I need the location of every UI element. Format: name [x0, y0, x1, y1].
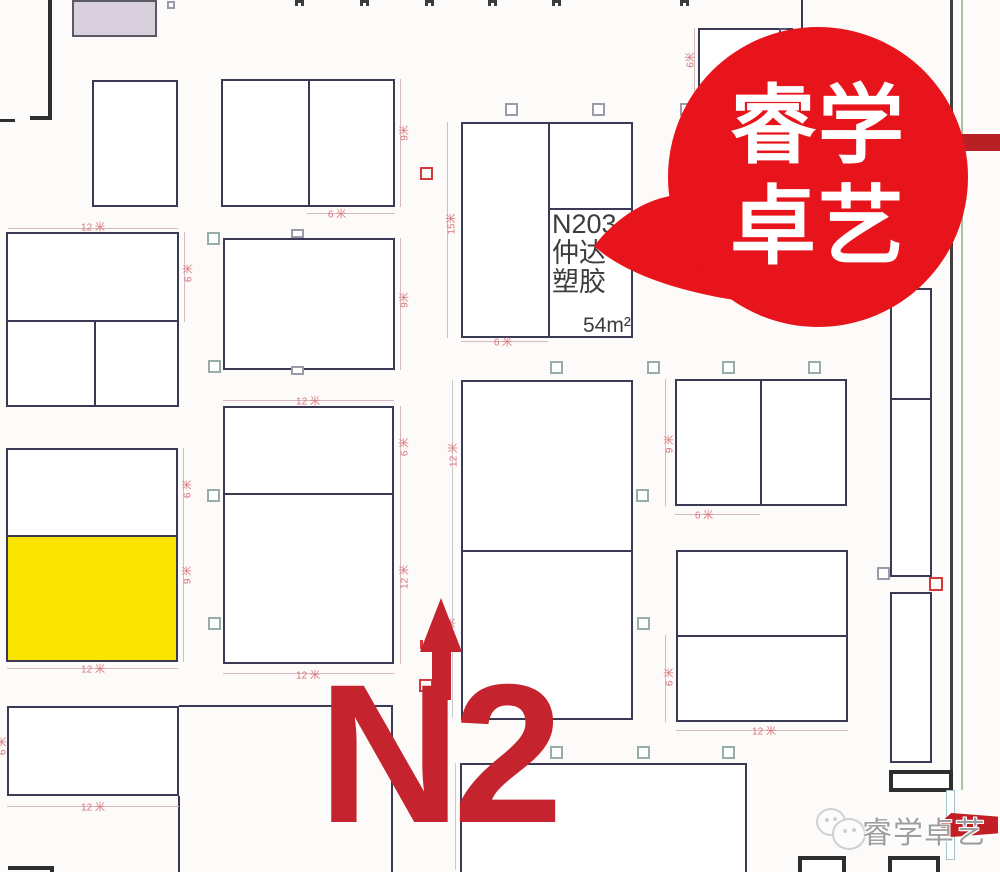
dimension-label: 12 米 [445, 443, 460, 467]
pillar-marker [637, 617, 650, 630]
north-arrow-icon [420, 598, 462, 652]
booth-empty [7, 706, 179, 796]
dimension-label: 12 米 [396, 565, 411, 589]
dimension-label: 6米 [682, 52, 697, 68]
dimension-label: 9 米 [179, 566, 194, 584]
dimension-line [307, 213, 395, 214]
booth-group [223, 406, 394, 664]
pillar-marker [647, 361, 660, 374]
pillar-marker [291, 366, 304, 375]
pillar-marker [877, 567, 890, 580]
pillar-marker [207, 489, 220, 502]
wechat-icon [816, 808, 866, 852]
gray-service-block [72, 0, 157, 37]
dimension-label: 12 米 [752, 723, 776, 738]
dimension-label: 6 米 [494, 334, 512, 349]
pillar-marker [291, 229, 304, 238]
pillar-marker [167, 1, 175, 9]
pillar-marker [722, 361, 735, 374]
dimension-label: 9 米 [661, 435, 676, 453]
wall-structure [888, 856, 940, 872]
dimension-label: 12 米 [81, 799, 105, 814]
dimension-line [400, 79, 401, 207]
ceiling-marker-icon [552, 0, 561, 6]
highlighted-booth [8, 535, 176, 660]
red-marker-square [929, 577, 943, 591]
booth-group [6, 232, 179, 407]
booth-pair [676, 550, 848, 722]
pillar-marker [636, 489, 649, 502]
pillar-marker [592, 103, 605, 116]
dimension-label: 12 米 [81, 661, 105, 676]
booth-pair [221, 79, 395, 207]
booth-pair [675, 379, 847, 506]
dimension-label: 12 米 [296, 667, 320, 682]
dimension-label: 9米 [396, 292, 411, 308]
wall-segment-green [961, 0, 963, 790]
booth-area-label: 54m² [583, 314, 631, 338]
pillar-marker [722, 746, 735, 759]
wall-segment [0, 119, 15, 122]
ceiling-marker-icon [360, 0, 369, 6]
booth-empty [223, 238, 395, 370]
dimension-label: 6 米 [661, 668, 676, 686]
north-arrow-shaft [432, 648, 451, 700]
wall-structure [889, 770, 953, 792]
pillar-marker [505, 103, 518, 116]
dimension-label: 6 米 [180, 264, 195, 282]
wall-segment [8, 866, 54, 872]
booth-edge [178, 796, 180, 872]
wall-segment [801, 0, 803, 30]
dimension-line [675, 514, 760, 515]
booth-group-yellow [6, 448, 178, 662]
booth-empty [92, 80, 178, 207]
dimension-label: 9米 [396, 125, 411, 141]
ceiling-marker-icon [295, 0, 304, 6]
pillar-marker [550, 361, 563, 374]
ceiling-marker-icon [425, 0, 434, 6]
wall-segment [48, 0, 52, 118]
dimension-label: 15米 [443, 213, 458, 234]
callout-bubble: 睿学 卓艺 [668, 27, 968, 327]
dimension-label: 6 米 [0, 737, 9, 755]
pillar-marker [637, 746, 650, 759]
dimension-label: 12 米 [296, 393, 320, 408]
floor-plan-canvas: N203 仲达 塑胶 54m² [0, 0, 1000, 872]
watermark-text: 睿学卓艺 [862, 808, 986, 852]
dimension-label: 6 米 [328, 206, 346, 221]
red-marker-square [420, 167, 433, 180]
callout-text-line1: 睿学 [730, 76, 906, 177]
dimension-label: 6 米 [179, 480, 194, 498]
ceiling-marker-icon [680, 0, 689, 6]
booth-narrow [890, 592, 932, 763]
booth-narrow [890, 288, 932, 577]
pillar-marker [208, 617, 221, 630]
wall-structure [798, 856, 846, 872]
pillar-marker [208, 360, 221, 373]
callout-text-line2: 卓艺 [730, 177, 906, 278]
ceiling-marker-icon [488, 0, 497, 6]
dimension-label: 12 米 [81, 219, 105, 234]
pillar-marker [207, 232, 220, 245]
pillar-marker [808, 361, 821, 374]
dimension-label: 6 米 [396, 438, 411, 456]
wall-segment [30, 116, 52, 120]
dimension-label: 6 米 [695, 507, 713, 522]
